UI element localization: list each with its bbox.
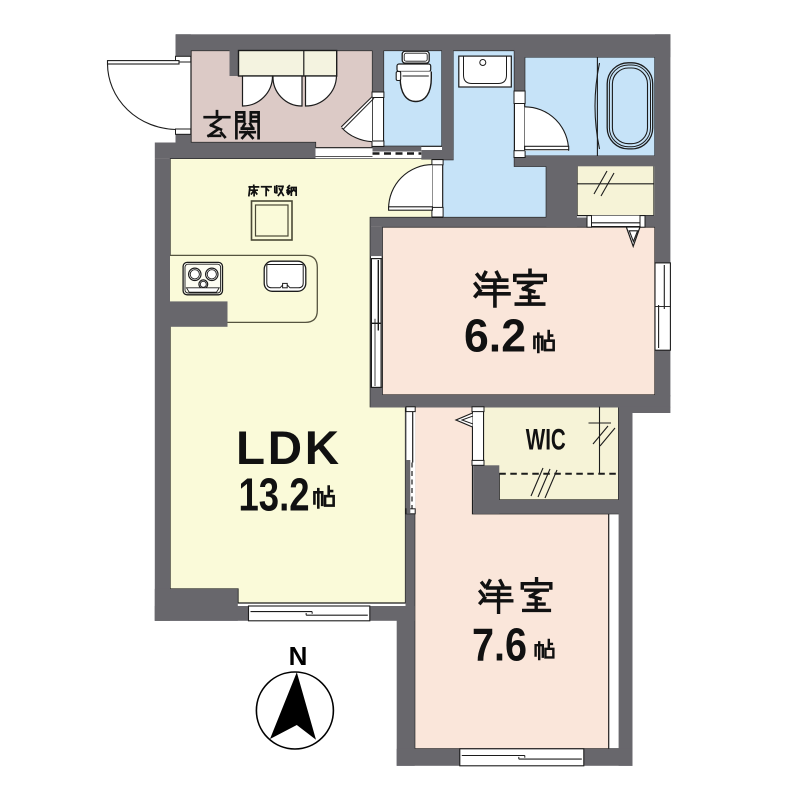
svg-text:LDK: LDK	[236, 422, 339, 475]
svg-text:13.2: 13.2	[239, 469, 310, 521]
svg-text:6.2: 6.2	[464, 310, 526, 362]
svg-text:WIC: WIC	[526, 424, 566, 457]
svg-text:7.6: 7.6	[472, 619, 527, 671]
svg-text:N: N	[289, 641, 308, 671]
